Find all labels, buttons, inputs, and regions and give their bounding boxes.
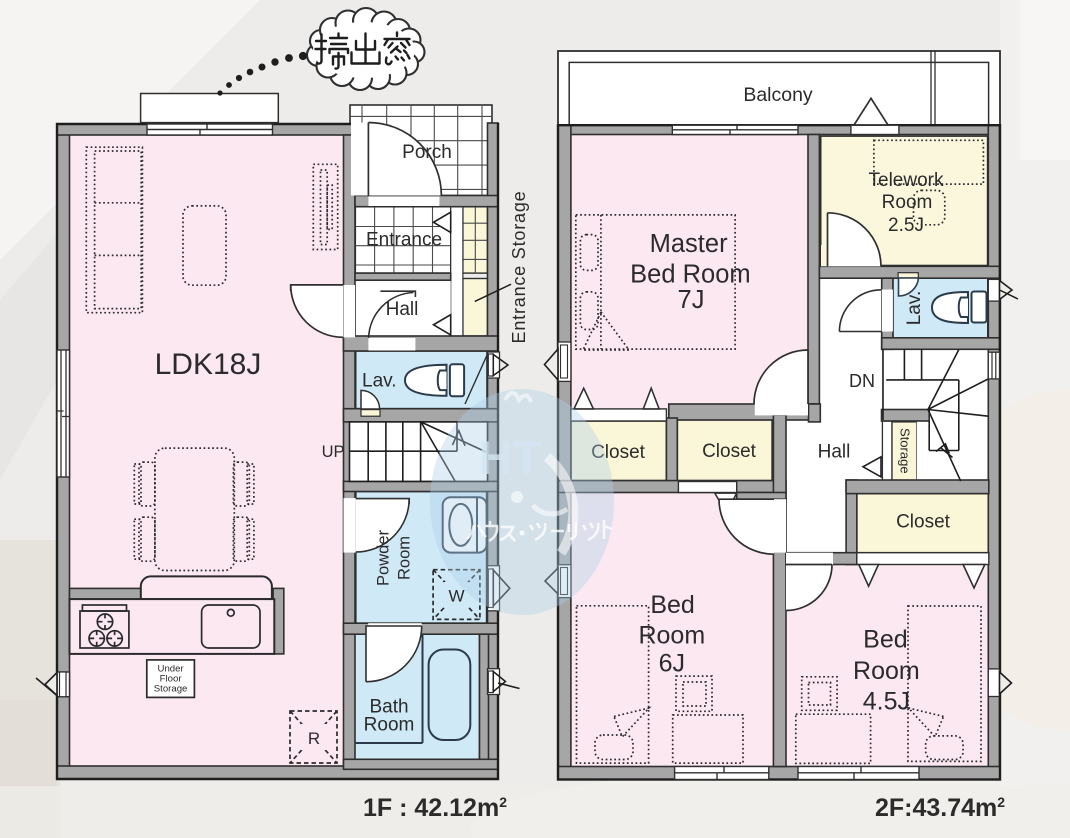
svg-text:W: W (448, 587, 464, 606)
svg-text:R: R (308, 729, 320, 748)
svg-text:Hall: Hall (818, 442, 851, 463)
svg-text:Room: Room (638, 622, 705, 650)
svg-text:1F : 42.12m2: 1F : 42.12m2 (363, 794, 507, 822)
svg-text:Room: Room (396, 536, 414, 580)
svg-text:Room: Room (364, 715, 415, 736)
svg-text:Bed: Bed (650, 591, 694, 619)
svg-text:Bed: Bed (863, 626, 907, 654)
svg-text:Entrance Storage: Entrance Storage (509, 191, 529, 344)
svg-text:Powder: Powder (375, 530, 393, 586)
svg-text:Storage: Storage (154, 684, 188, 695)
svg-text:Bed Room: Bed Room (630, 261, 750, 289)
svg-text:2.5J: 2.5J (888, 215, 924, 236)
svg-text:Lav.: Lav. (904, 291, 925, 326)
svg-text:HT: HT (479, 431, 542, 484)
svg-text:7J: 7J (678, 286, 705, 314)
svg-text:Storage: Storage (897, 428, 912, 474)
svg-text:UP: UP (322, 443, 345, 461)
svg-text:Room: Room (882, 192, 933, 213)
svg-text:Hall: Hall (386, 299, 419, 320)
svg-text:4.5J: 4.5J (863, 688, 910, 716)
svg-text:LDK18J: LDK18J (155, 348, 262, 381)
svg-text:Entrance: Entrance (366, 230, 442, 251)
svg-text:DN: DN (849, 371, 875, 391)
svg-text:2F:43.74m2: 2F:43.74m2 (875, 794, 1005, 822)
svg-text:Master: Master (650, 230, 728, 258)
svg-text:Porch: Porch (402, 142, 452, 163)
svg-text:Balcony: Balcony (743, 84, 813, 106)
svg-text:Closet: Closet (896, 512, 951, 533)
svg-text:Room: Room (853, 657, 920, 685)
svg-text:6J: 6J (659, 650, 685, 678)
svg-text:Telework: Telework (869, 170, 944, 191)
svg-text:Closet: Closet (702, 441, 757, 462)
svg-text:Lav.: Lav. (362, 371, 397, 392)
